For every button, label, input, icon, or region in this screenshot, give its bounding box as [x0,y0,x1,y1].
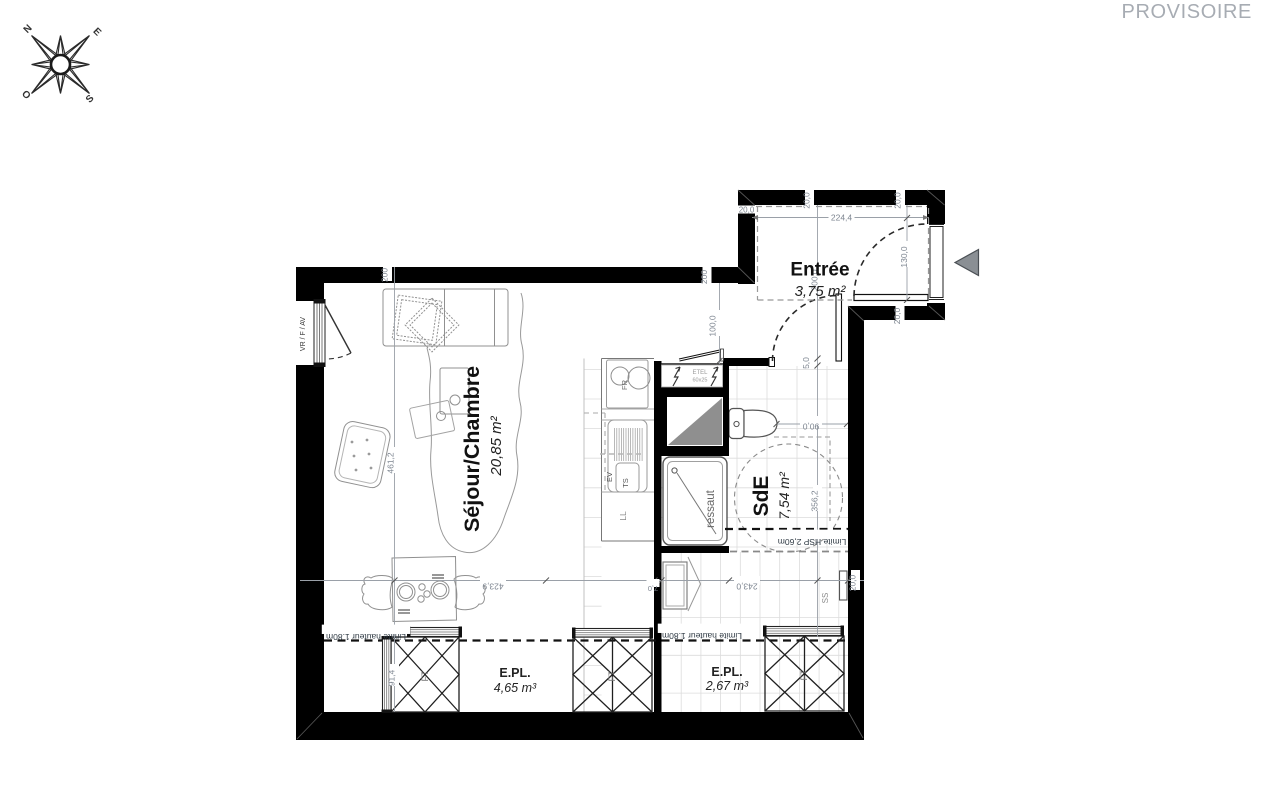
svg-text:SdE: SdE [750,476,773,517]
svg-text:20,0: 20,0 [739,206,755,215]
svg-text:VR / F / AV: VR / F / AV [300,317,307,351]
svg-text:Entrée: Entrée [790,260,849,281]
svg-text:224,4: 224,4 [831,213,853,223]
svg-text:200: 200 [380,268,390,282]
svg-text:2,67 m³: 2,67 m³ [705,679,749,693]
svg-text:Limite HSP 2,60m: Limite HSP 2,60m [778,537,846,547]
svg-text:FT: FT [420,670,430,681]
svg-text:EV: EV [605,472,614,482]
svg-text:20,0: 20,0 [892,307,902,324]
svg-text:90,0: 90,0 [802,422,819,432]
svg-text:20,85 m²: 20,85 m² [488,415,505,476]
svg-text:E.PL.: E.PL. [711,665,742,679]
svg-text:Séjour/Chambre: Séjour/Chambre [460,366,484,532]
svg-text:91,4: 91,4 [387,669,397,686]
svg-text:LL: LL [618,511,628,521]
svg-text:20,0: 20,0 [848,574,858,591]
svg-text:20,0: 20,0 [802,192,812,209]
svg-text:4,65 m³: 4,65 m³ [494,681,537,695]
svg-text:100,0: 100,0 [708,315,718,337]
svg-text:ressaut: ressaut [705,489,717,528]
svg-text:3,75 m²: 3,75 m² [795,283,847,300]
svg-text:FT: FT [799,669,809,680]
svg-text:7,0: 7,0 [648,584,658,593]
svg-text:200: 200 [699,270,709,284]
svg-text:E.PL.: E.PL. [499,666,530,680]
svg-text:356,2: 356,2 [810,490,820,512]
svg-text:Limite hauteur 1.80m: Limite hauteur 1.80m [662,631,742,641]
svg-text:FR: FR [620,379,629,390]
svg-text:ETEL: ETEL [692,370,708,376]
svg-text:20,0: 20,0 [893,192,903,209]
svg-text:FT: FT [607,670,617,681]
svg-text:243,0: 243,0 [736,582,758,592]
svg-text:SS: SS [821,593,830,604]
svg-text:7,54 m²: 7,54 m² [776,471,792,520]
svg-text:Limite hauteur 1.80m: Limite hauteur 1.80m [326,632,406,642]
svg-text:TS: TS [621,478,630,488]
svg-text:130,0: 130,0 [899,246,909,268]
svg-text:PROVISOIRE: PROVISOIRE [1122,1,1252,23]
svg-text:5,0: 5,0 [801,357,811,369]
svg-text:461,2: 461,2 [386,452,396,474]
svg-text:60x25: 60x25 [693,378,708,384]
svg-text:423,9: 423,9 [482,582,504,592]
